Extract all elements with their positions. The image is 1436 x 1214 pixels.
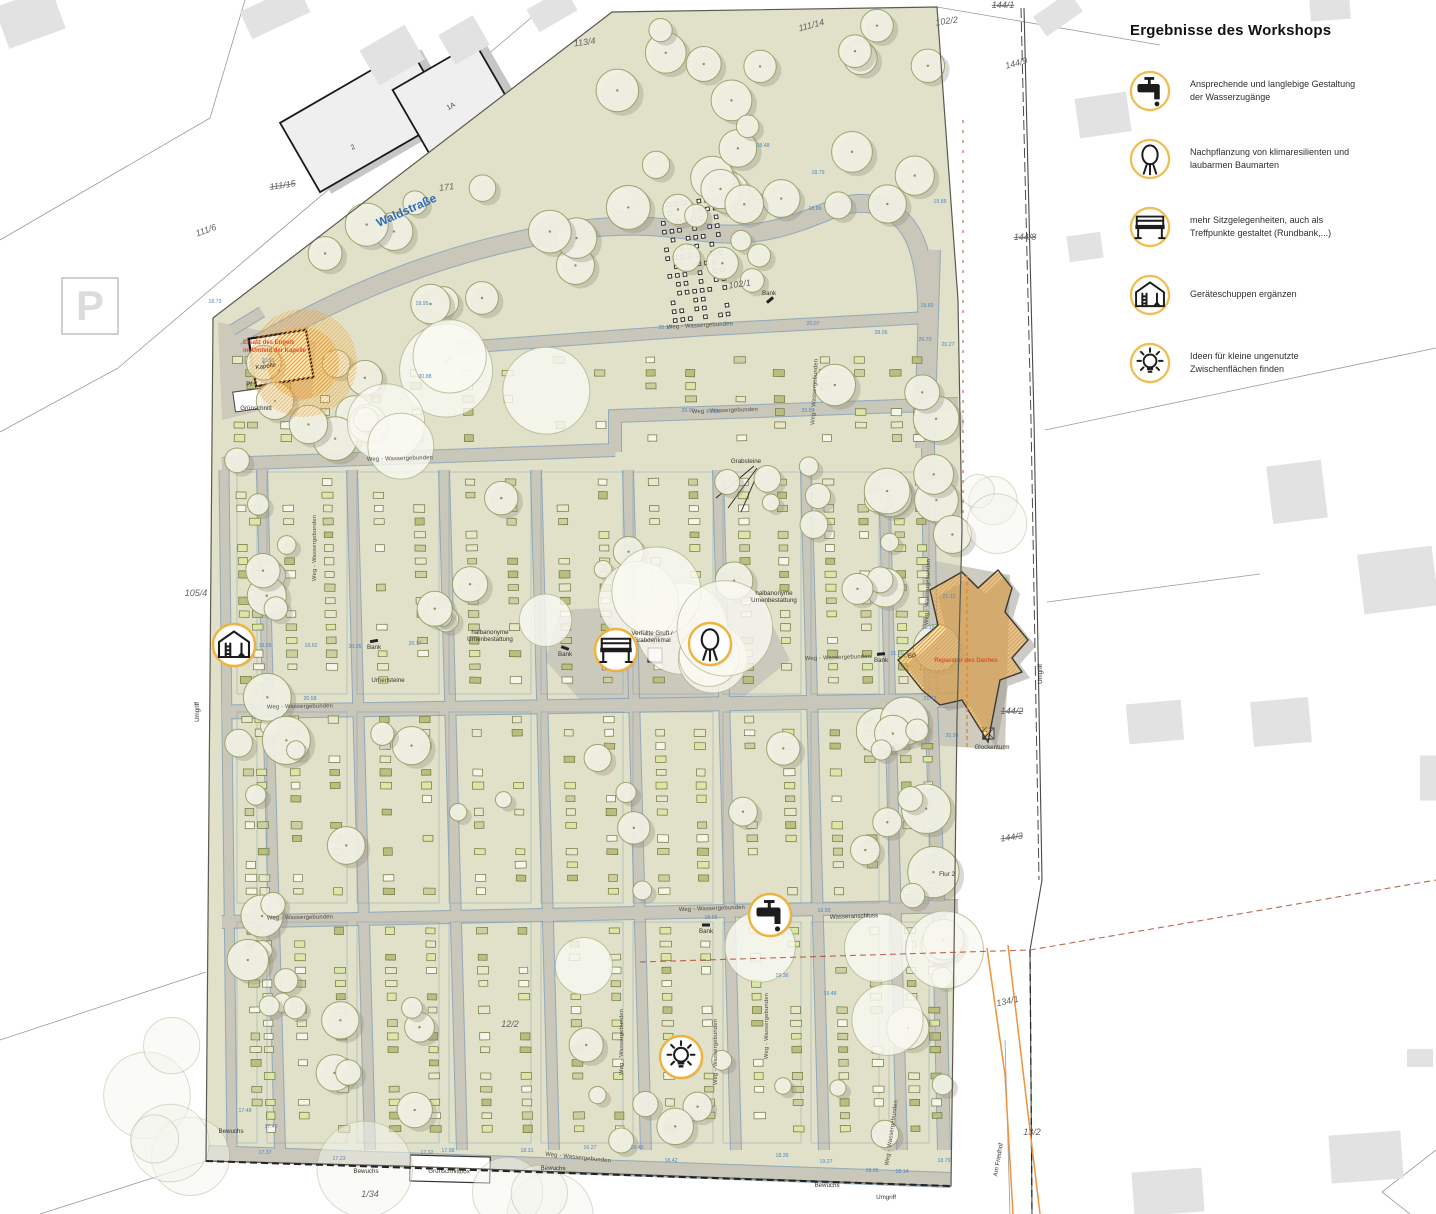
grave-plot (299, 1112, 309, 1119)
elevation-label: 18.79 (812, 170, 825, 176)
place-label: halbanonymeUrnenbestattung (467, 629, 513, 643)
urn-grave-marker (723, 286, 727, 290)
legend-item-water: Ansprechende und langlebige Gestaltung d… (1128, 69, 1428, 113)
grave-plot (238, 558, 247, 565)
grave-plot (251, 1033, 260, 1040)
grave-plot (932, 1099, 942, 1106)
grave-plot (607, 835, 617, 841)
grave-plot (773, 370, 784, 377)
grave-plot (696, 782, 706, 789)
grave-plot (603, 677, 612, 683)
grave-plot (464, 435, 473, 442)
grave-plot (890, 370, 901, 377)
grave-plot (291, 796, 301, 802)
grave-plot (246, 874, 257, 881)
parcel-label: 1/34 (361, 1189, 379, 1199)
grave-plot (424, 888, 436, 895)
tree-icon (1128, 137, 1172, 181)
elevation-label: 19.95 (416, 301, 429, 307)
utility-line (1008, 945, 1040, 1214)
grave-plot (415, 518, 424, 525)
grave-plot (514, 782, 524, 788)
place-label: Urnensteine (371, 677, 405, 684)
urn-grave-marker (661, 221, 665, 225)
elevation-label: 21.12 (943, 594, 956, 600)
path-label: Weg - Wassergebunden (267, 914, 333, 921)
grave-plot (251, 1059, 261, 1066)
grave-plot (297, 1033, 308, 1040)
grave-plot (470, 664, 481, 670)
grave-plot (389, 1086, 399, 1092)
grave-plot (380, 756, 391, 763)
elevation-label: 21.20 (891, 651, 904, 657)
grave-plot (792, 1046, 802, 1053)
urn-grave-marker (684, 281, 688, 285)
grave-plot (752, 993, 761, 1000)
grave-plot (612, 993, 621, 1000)
parcel-label: 105/4 (185, 588, 208, 598)
place-label: Glockenturm (974, 744, 1009, 751)
path-label: Weg - Wassergebunden (619, 1009, 625, 1075)
marker-bulb-icon[interactable] (660, 1036, 704, 1080)
grave-plot (386, 954, 396, 960)
grave-plot (900, 756, 911, 763)
grave-plot (785, 782, 795, 788)
grave-plot (656, 770, 666, 776)
grave-plot (656, 756, 666, 762)
grave-plot (475, 874, 485, 881)
grave-plot (482, 1125, 492, 1132)
grave-plot (286, 638, 297, 644)
grave-plot (257, 769, 267, 776)
context-building (1357, 546, 1436, 615)
grave-plot (774, 396, 785, 403)
grave-plot (414, 505, 425, 513)
grave-plot (609, 875, 618, 882)
grave-plot (834, 888, 843, 895)
parcel-label: 144/3 (1000, 831, 1024, 844)
roof-repair-label: Reparatur des Daches (934, 658, 998, 664)
grave-plot (781, 637, 790, 643)
legend-title: Ergebnisse des Workshops (1130, 22, 1428, 39)
path-label: Weg - Wassergebunden (764, 993, 770, 1059)
urn-grave-marker (695, 307, 699, 311)
grave-plot (573, 1112, 584, 1119)
grave-plot (829, 664, 838, 670)
elevation-label: 19.93 (818, 908, 831, 914)
grave-plot (917, 545, 926, 551)
grave-plot (662, 1020, 674, 1026)
marker-shed-icon[interactable] (213, 624, 257, 668)
grave-plot (245, 808, 254, 815)
grave-plot (264, 1047, 273, 1053)
grave-plot (249, 1007, 259, 1013)
grave-plot (234, 434, 245, 442)
grave-plot (468, 558, 477, 564)
parcel-label: 171 (438, 181, 454, 193)
grave-plot (594, 370, 604, 376)
grave-plot (335, 980, 345, 986)
grave-plot (698, 875, 708, 881)
grave-plot (754, 1086, 763, 1092)
grave-plot (326, 650, 337, 658)
grave-plot (238, 544, 248, 551)
parcel-label: 111/6 (194, 222, 217, 239)
legend-item-seating: mehr Sitzgelegenheiten, auch als Treffpu… (1128, 205, 1428, 249)
grave-plot (470, 677, 481, 683)
grave-plot (562, 664, 572, 670)
grave-plot (562, 677, 573, 683)
grave-plot (830, 730, 839, 736)
grave-plot (596, 421, 606, 428)
grave-plot (775, 422, 786, 428)
tree-symbol (844, 914, 912, 982)
elevation-label: 18.73 (209, 299, 222, 305)
grave-plot (290, 769, 300, 776)
grave-plot (292, 836, 301, 842)
context-building (1328, 1131, 1403, 1184)
grave-plot (689, 506, 698, 512)
grave-plot (606, 808, 616, 815)
grave-plot (823, 435, 832, 442)
grave-plot (748, 848, 757, 855)
urn-grave-marker (701, 297, 705, 301)
grave-plot (837, 1007, 848, 1014)
elevation-label: 19.65 (259, 643, 272, 649)
place-label: BP (908, 653, 916, 660)
urn-grave-marker (699, 279, 703, 283)
place-label: Verfüllte Gruft /Grabdenkmal (631, 630, 673, 644)
grave-plot (833, 862, 843, 868)
grave-plot (650, 519, 660, 525)
parcel-line (210, 0, 245, 118)
parcel-label: 12/2 (501, 1019, 519, 1029)
tree-symbol (906, 911, 984, 989)
grave-plot (508, 585, 518, 591)
grave-plot (380, 769, 391, 776)
grave-plot (839, 1073, 849, 1080)
grave-plot (428, 1007, 437, 1013)
grave-plot (820, 357, 829, 363)
grave-plot (512, 729, 522, 736)
elevation-label: 17.48 (239, 1108, 252, 1114)
grave-plot (599, 492, 608, 499)
grave-plot (325, 584, 335, 592)
grave-plot (323, 518, 333, 525)
elevation-label: 17.37 (259, 1150, 272, 1156)
grave-plot (697, 848, 708, 855)
elevation-label: 17.98 (442, 1148, 455, 1154)
urn-grave-marker (693, 289, 697, 293)
grave-plot (283, 505, 293, 511)
grave-plot (564, 730, 573, 736)
place-label: Umgriff (194, 702, 201, 722)
grave-plot (466, 545, 477, 551)
grave-plot (855, 422, 866, 428)
grave-plot (422, 769, 431, 775)
grave-plot (427, 994, 436, 1000)
urn-grave-marker (715, 224, 719, 228)
grave-plot (373, 492, 384, 498)
elevation-label: 18.39 (776, 1153, 789, 1159)
grave-plot (897, 637, 908, 644)
urn-grave-marker (726, 312, 730, 316)
grave-plot (899, 676, 908, 683)
context-building (1309, 0, 1351, 21)
grave-plot (286, 624, 297, 631)
elevation-label: 20.58 (304, 696, 317, 702)
grave-plot (663, 1007, 672, 1014)
grave-plot (336, 994, 345, 1000)
grave-plot (662, 967, 671, 973)
place-label: Am Friedhof (992, 1142, 1005, 1177)
elevation-label: 19.85 (934, 199, 947, 205)
context-building (0, 0, 66, 49)
grave-plot (838, 1020, 847, 1027)
grave-plot (236, 492, 246, 499)
marker-tree-icon[interactable] (689, 623, 733, 667)
grave-plot (754, 1072, 763, 1079)
tree-symbol (131, 1115, 179, 1163)
grave-plot (839, 1047, 848, 1053)
grave-plot (780, 610, 789, 617)
grave-plot (377, 664, 388, 671)
grave-plot (893, 434, 902, 441)
grave-plot (689, 479, 698, 485)
urn-grave-marker (708, 287, 712, 291)
grave-plot (754, 1059, 764, 1066)
grave-plot (480, 1032, 490, 1040)
grave-plot (234, 422, 244, 428)
grave-plot (898, 624, 907, 631)
grave-plot (792, 1072, 802, 1079)
grave-plot (826, 558, 835, 564)
place-label: Grünschnitt (240, 405, 272, 412)
grave-plot (521, 1033, 530, 1040)
grave-plot (324, 532, 333, 538)
grave-plot (826, 545, 835, 552)
legend-item-text: Ansprechende und langlebige Gestaltung d… (1190, 78, 1368, 105)
grave-plot (855, 370, 865, 377)
place-label: Bank (874, 657, 889, 664)
grave-plot (383, 848, 392, 856)
elevation-label: 20.93 (707, 409, 720, 415)
urn-grave-marker (681, 318, 685, 322)
grave-plot (646, 357, 655, 363)
grave-plot (426, 941, 436, 948)
grave-plot (374, 505, 383, 511)
elevation-label: 17.23 (333, 1156, 346, 1162)
elevation-label: 18.42 (665, 1158, 678, 1164)
grave-plot (784, 769, 795, 776)
urn-grave-marker (675, 273, 679, 277)
grave-plot (375, 545, 384, 552)
grave-plot (239, 611, 249, 618)
grave-plot (427, 954, 436, 961)
tree-symbol (413, 320, 486, 393)
grave-plot (658, 848, 669, 854)
path-label: Weg - Wassergebunden (312, 515, 318, 581)
urn-grave-marker (685, 290, 689, 294)
elevation-label: 20.90 (682, 408, 695, 414)
elevation-label: 20.88 (419, 374, 432, 380)
grave-plot (474, 822, 484, 829)
grave-plot (334, 968, 345, 974)
grave-plot (478, 954, 487, 960)
elevation-label: 18.48 (757, 143, 770, 149)
grave-plot (482, 1099, 491, 1106)
grave-plot (793, 1126, 804, 1132)
place-label: halbanonymeUrnenbestattung (751, 590, 797, 604)
grave-plot (611, 981, 621, 987)
grave-plot (295, 941, 305, 947)
grave-plot (380, 717, 389, 723)
grave-plot (697, 835, 708, 842)
grave-plot (478, 1006, 490, 1014)
elevation-label: 18.05 (866, 1168, 879, 1174)
grave-plot (571, 994, 580, 1000)
grave-plot (930, 1046, 941, 1052)
grave-plot (685, 396, 696, 402)
grave-plot (863, 677, 873, 684)
elevation-label: 18.79 (938, 1158, 951, 1164)
grave-plot (520, 1047, 531, 1053)
urn-grave-marker (680, 309, 684, 313)
place-label: Umgriff (1037, 664, 1044, 684)
grave-plot (752, 1007, 761, 1014)
grave-plot (334, 888, 343, 895)
urn-grave-marker (701, 234, 705, 238)
grave-plot (383, 888, 394, 895)
tree-symbol (555, 938, 612, 995)
marker-bench-icon[interactable] (595, 629, 639, 673)
urn-grave-marker (677, 228, 681, 232)
grave-plot (283, 519, 293, 525)
grave-plot (754, 1112, 765, 1119)
grave-plot (840, 1125, 850, 1132)
grave-plot (660, 941, 671, 947)
grave-plot (705, 1086, 714, 1092)
grave-plot (855, 409, 866, 416)
grave-plot (246, 888, 257, 894)
grave-plot (264, 1034, 273, 1040)
grave-plot (697, 862, 709, 869)
grave-plot (739, 518, 749, 525)
context-building (1250, 697, 1312, 747)
context-building (1266, 460, 1328, 524)
place-label: Flur 2 (939, 871, 955, 878)
parcel-label: 144/9 (1004, 55, 1028, 70)
grave-plot (697, 795, 706, 802)
grave-plot (833, 848, 842, 855)
tree-symbol (368, 413, 434, 479)
grave-plot (385, 967, 396, 973)
grave-plot (481, 1073, 491, 1079)
place-label: Grabsteine (731, 458, 762, 465)
elevation-label: 20.17 (659, 325, 672, 331)
parcel-line (0, 368, 118, 432)
grave-plot (522, 1099, 532, 1106)
place-label: Bank (699, 928, 714, 935)
grave-plot (689, 492, 698, 499)
grave-plot (739, 531, 750, 538)
grave-plot (326, 664, 338, 671)
grave-plot (476, 888, 485, 895)
urn-grave-marker (678, 291, 682, 295)
bench-symbol (702, 924, 710, 927)
grave-plot (909, 1086, 920, 1093)
urn-grave-marker (666, 257, 670, 261)
grave-plot (422, 782, 432, 789)
grave-plot (790, 1020, 801, 1026)
grave-plot (479, 981, 488, 987)
grave-plot (696, 769, 705, 776)
grave-plot (646, 370, 655, 376)
grave-plot (472, 729, 481, 736)
grave-plot (836, 968, 847, 974)
grave-plot (781, 624, 791, 632)
grave-plot (703, 1020, 713, 1027)
grave-plot (929, 1007, 940, 1013)
elevation-label: 18.89 (809, 206, 822, 212)
grave-plot (786, 821, 796, 828)
grave-plot (873, 1086, 884, 1092)
grave-plot (829, 677, 839, 683)
grave-plot (744, 730, 755, 736)
grave-plot (298, 1060, 307, 1066)
grave-plot (564, 756, 575, 762)
grave-plot (519, 967, 528, 973)
grave-plot (653, 677, 664, 683)
grave-plot (600, 545, 609, 551)
grave-plot (250, 1046, 261, 1052)
grave-plot (374, 519, 384, 525)
grave-plot (465, 479, 474, 485)
urn-grave-marker (670, 229, 674, 233)
grave-plot (382, 809, 391, 815)
grave-plot (330, 770, 340, 776)
grave-plot (656, 782, 667, 789)
grave-plot (335, 927, 344, 934)
grave-plot (243, 769, 253, 776)
grave-plot (566, 848, 577, 854)
legend-item-text: mehr Sitzgelegenheiten, auch als Treffpu… (1190, 214, 1368, 241)
grave-plot (666, 1099, 675, 1106)
grave-plot (659, 888, 670, 895)
grave-plot (515, 861, 526, 868)
elevation-label: 19.36 (776, 973, 789, 979)
urn-grave-marker (714, 215, 718, 219)
urn-grave-marker (702, 306, 706, 310)
place-label: Bank (762, 290, 777, 297)
grave-plot (661, 954, 671, 961)
grave-plot (516, 849, 525, 855)
grave-plot (747, 835, 758, 842)
marker-faucet-icon[interactable] (749, 894, 793, 938)
grave-plot (474, 849, 485, 855)
grave-plot (480, 1047, 489, 1053)
grave-plot (702, 1006, 712, 1014)
grave-plot (326, 624, 336, 630)
grave-plot (608, 888, 618, 894)
grave-plot (830, 743, 840, 749)
urn-grave-marker (673, 318, 677, 322)
path-label: Weg - Wassergebunden (267, 703, 333, 710)
grave-plot (242, 716, 252, 722)
grave-plot (325, 611, 336, 618)
grave-plot (734, 357, 745, 364)
elevation-label: 20.91 (262, 358, 275, 364)
